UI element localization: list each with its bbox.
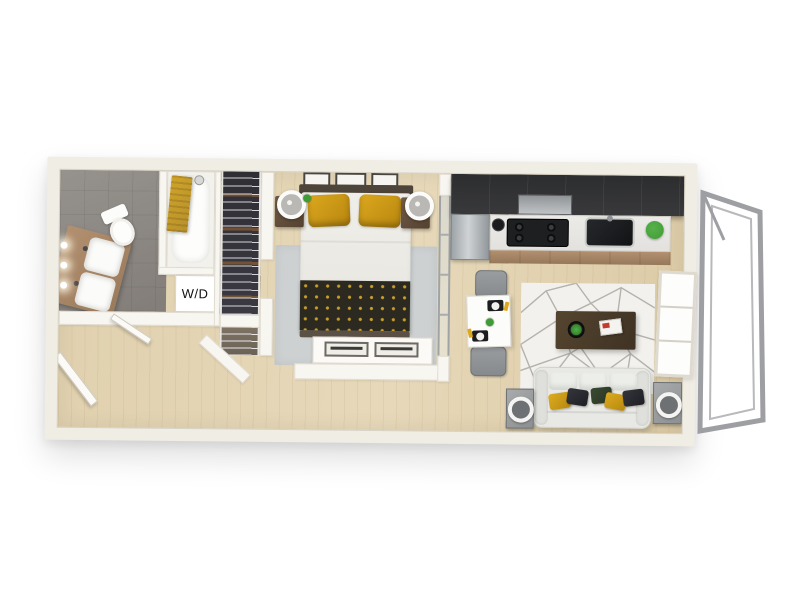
lamp-icon	[508, 396, 534, 422]
floorplan-render: W/D	[0, 0, 800, 600]
bed-pillow-right	[358, 194, 401, 228]
small-plant-icon	[303, 194, 311, 202]
counter-plant-icon	[646, 221, 664, 239]
placemat	[487, 300, 503, 311]
napkin-icon	[504, 301, 510, 311]
shower-head-icon	[194, 175, 204, 185]
entry-door	[58, 352, 98, 407]
ring-lamp-icon	[405, 191, 434, 220]
washer-dryer-label: W/D	[182, 286, 209, 301]
patterned-throw-blanket	[300, 280, 411, 331]
refrigerator	[450, 214, 489, 260]
kitchen-sink	[587, 219, 633, 245]
bed-pillow-left	[307, 194, 350, 228]
dresser	[312, 336, 432, 364]
side-table-right	[653, 382, 682, 424]
dresser-drawer	[374, 342, 418, 357]
centerpiece-plant-icon	[486, 318, 494, 326]
throw-pillow-dark	[566, 388, 589, 407]
sofa	[533, 367, 652, 429]
sofa-seat-edge	[547, 411, 637, 414]
bedroom-half-wall	[294, 363, 442, 381]
wall	[437, 356, 449, 382]
wall	[59, 311, 222, 327]
sink-right	[75, 272, 116, 312]
kitchen-base-cabinets	[489, 250, 670, 265]
wall	[439, 174, 451, 196]
wall	[158, 267, 214, 276]
balcony-railing	[688, 180, 783, 444]
wall	[220, 314, 260, 327]
glass-partition	[437, 196, 451, 356]
sconce-light-icon	[61, 242, 68, 249]
apartment-unit: W/D	[45, 157, 698, 447]
sconce-light-icon	[60, 262, 67, 269]
closet-wire-shelving	[220, 171, 261, 314]
magazines-icon	[599, 318, 623, 336]
dresser-drawer	[324, 342, 368, 357]
bed	[298, 184, 414, 343]
wall	[259, 298, 273, 356]
wall	[260, 172, 274, 260]
sofa-arm-left	[535, 370, 549, 425]
sofa-cushion	[609, 373, 637, 390]
washer-dryer: W/D	[175, 275, 215, 312]
side-table-left	[506, 388, 534, 428]
throw-pillow-dark	[622, 388, 645, 407]
ring-lamp-icon	[277, 190, 306, 219]
unit-interior: W/D	[58, 170, 685, 434]
coffee-table	[556, 311, 636, 350]
placemat	[472, 330, 488, 341]
dining-table	[466, 295, 511, 348]
kettle-icon	[493, 219, 504, 230]
range-hood	[518, 195, 572, 216]
cooktop	[507, 218, 569, 247]
lamp-icon	[656, 392, 682, 418]
dining-chair-bottom	[470, 346, 506, 376]
sconce-light-icon	[60, 282, 67, 289]
plant-bowl-icon	[568, 321, 585, 338]
